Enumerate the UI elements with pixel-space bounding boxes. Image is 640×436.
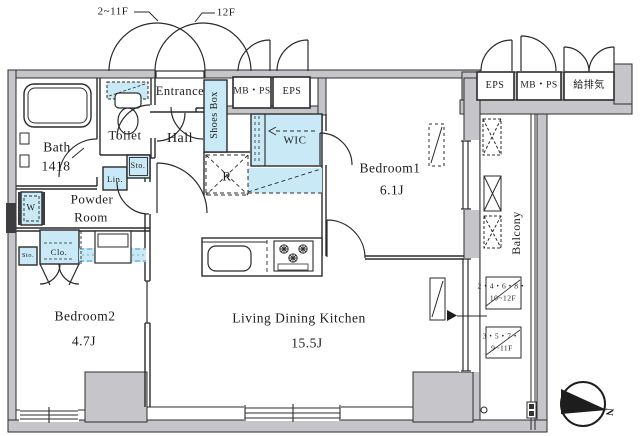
- bathtub: [20, 84, 91, 167]
- room-label-bedroom1: Bedroom1: [360, 161, 421, 175]
- compass-north-label: N: [602, 407, 613, 416]
- room-label-ldk: Living Dining Kitchen: [232, 311, 365, 325]
- balcony-hatch-boxes: [483, 119, 501, 248]
- utility-label-kyuhaiki: 給排気: [573, 81, 605, 91]
- room-label-balcony: Balcony: [510, 211, 522, 255]
- balcony-note2-line2: 9~11F: [491, 344, 513, 352]
- room-label-entrance: Entrance: [156, 85, 204, 98]
- room-label-shoes-box: Shoes Box: [210, 91, 220, 139]
- room-size-bedroom2: 4.7J: [72, 334, 96, 348]
- utility-label-mbps-right: MB・PS: [520, 81, 557, 91]
- room-size-ldk: 15.5J: [291, 336, 322, 350]
- floor-range-label-left: 2~11F: [98, 7, 129, 18]
- rail-fitting: [529, 404, 534, 409]
- floor-range-label-right: 12F: [217, 8, 236, 19]
- balcony-note1-line2: 10~12F: [490, 294, 516, 302]
- room-label-powder-1: Powder: [71, 193, 114, 206]
- room-label-wic: WIC: [284, 136, 307, 147]
- room-label-toilet: Toilet: [108, 129, 141, 142]
- compass: [561, 382, 607, 426]
- utility-label-eps-left: EPS: [283, 87, 302, 97]
- balcony-note2-line1: 3・5・7・: [483, 332, 520, 340]
- bedroom2-desk: [95, 231, 131, 263]
- fixture-label-closet: Clo.: [51, 248, 67, 257]
- utility-label-eps-right: EPS: [486, 81, 505, 91]
- ac-direction-arrow: [447, 310, 457, 321]
- room-label-hall: Hall: [167, 132, 193, 146]
- floor-plan: 2~11F 12F Entrance Hall Shoes Box Toilet…: [0, 0, 640, 436]
- rail-fitting: [529, 411, 534, 416]
- balcony-note1-line1: 2・4・6・8・: [478, 282, 527, 290]
- room-label-powder-2: Room: [74, 211, 108, 224]
- fixture-label-sto-hall: Sto.: [131, 162, 146, 170]
- balcony-rail: [481, 114, 536, 430]
- fixture-label-washer: W: [27, 204, 36, 213]
- utility-label-mbps-left: MB・PS: [233, 87, 270, 97]
- room-size-bath: 1418: [42, 159, 71, 173]
- kitchen-counter: [202, 238, 322, 276]
- room-size-bedroom1: 6.1J: [380, 183, 404, 197]
- fixture-label-sto-bedroom2: Sto.: [22, 253, 34, 260]
- fixture-label-linen: Lin.: [107, 175, 123, 184]
- wall-column-marker: [6, 203, 16, 233]
- room-label-bath: Bath: [43, 140, 71, 154]
- room-label-bedroom2: Bedroom2: [55, 309, 116, 323]
- fixture-label-refrigerator: R: [222, 170, 231, 183]
